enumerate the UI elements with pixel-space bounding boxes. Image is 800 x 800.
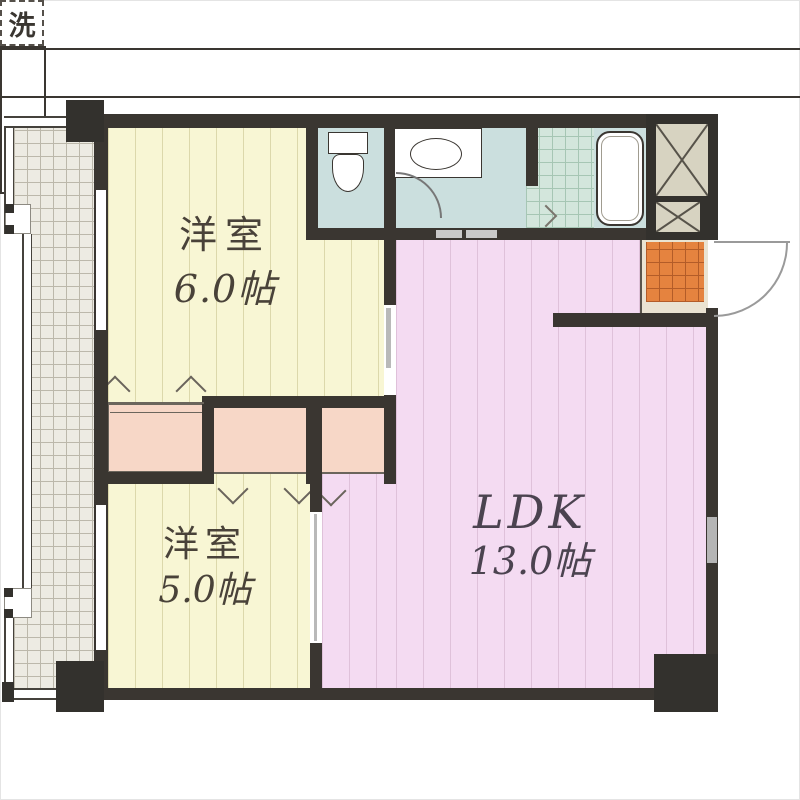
balcony-partition [5,204,31,234]
wall-closet-right [384,396,396,484]
balcony-railing [4,116,66,128]
wall-bedroom2-ldk [310,643,322,688]
window-bedroom-1 [94,190,108,330]
ldk-floor [322,474,396,688]
sliding-door-leaf [386,308,391,368]
pipe-shaft-icon [656,124,708,196]
closet-bedroom-2 [214,408,306,472]
washing-machine-area: 洗 [0,0,44,46]
closet-shelf-line [110,412,202,413]
balcony-railing [22,234,32,590]
wall-closet-divider [306,396,322,484]
bedroom-2-label: 洋室 5.0帖 [110,526,300,610]
sliding-door-leaf [314,514,317,641]
wall-closet-top [208,396,396,408]
closet-edge-line [322,472,384,474]
closet-front-line [108,402,204,404]
pillar-top-left [66,100,104,142]
wall-right [706,308,718,688]
counter-divider [0,96,800,98]
ldk-name: LDK [430,488,630,536]
balcony-partition [4,588,32,618]
bedroom-2-size: 5.0帖 [110,572,300,610]
pillar-bottom-left [56,661,104,712]
wall-washroom-bathroom [526,114,538,186]
wall-kitchen [553,313,718,327]
door-threshold [466,230,497,238]
bedroom-1-size: 6.0帖 [130,270,320,310]
closet-bedroom-1 [108,404,204,472]
door-threshold [436,230,462,238]
entrance-floor [646,242,704,302]
wall-bedroom1-ldk [384,240,396,305]
toilet-tank-icon [328,132,368,154]
floor-plan: 洗 洋室 6.0帖 洋室 5.0帖 LDK 13.0帖 [0,0,800,800]
closet-ldk [322,408,384,472]
balcony-inset [4,234,22,590]
ldk-label: LDK 13.0帖 [430,488,630,582]
railing-post [2,682,14,702]
pipe-shaft-icon [656,202,700,232]
washbasin-icon [410,138,462,170]
pillar-bottom-right [654,654,718,712]
wall-bottom [56,688,718,700]
window-bedroom-2 [94,505,108,650]
bedroom-2-name: 洋室 [110,526,300,564]
wall-bedroom2-ldk [310,484,322,512]
washing-machine-label: 洗 [9,4,36,43]
bedroom-1-name: 洋室 [130,216,320,256]
bathtub-icon [596,131,644,226]
wall-closet-bottom [94,472,214,484]
bedroom-1-label: 洋室 6.0帖 [130,216,320,310]
counter-divider [0,48,800,50]
window-ldk [707,517,717,563]
ldk-size: 13.0帖 [430,542,630,582]
entrance-door-arc [714,243,788,317]
closet-edge-line [214,472,306,474]
wall-closet-divider [202,396,214,484]
